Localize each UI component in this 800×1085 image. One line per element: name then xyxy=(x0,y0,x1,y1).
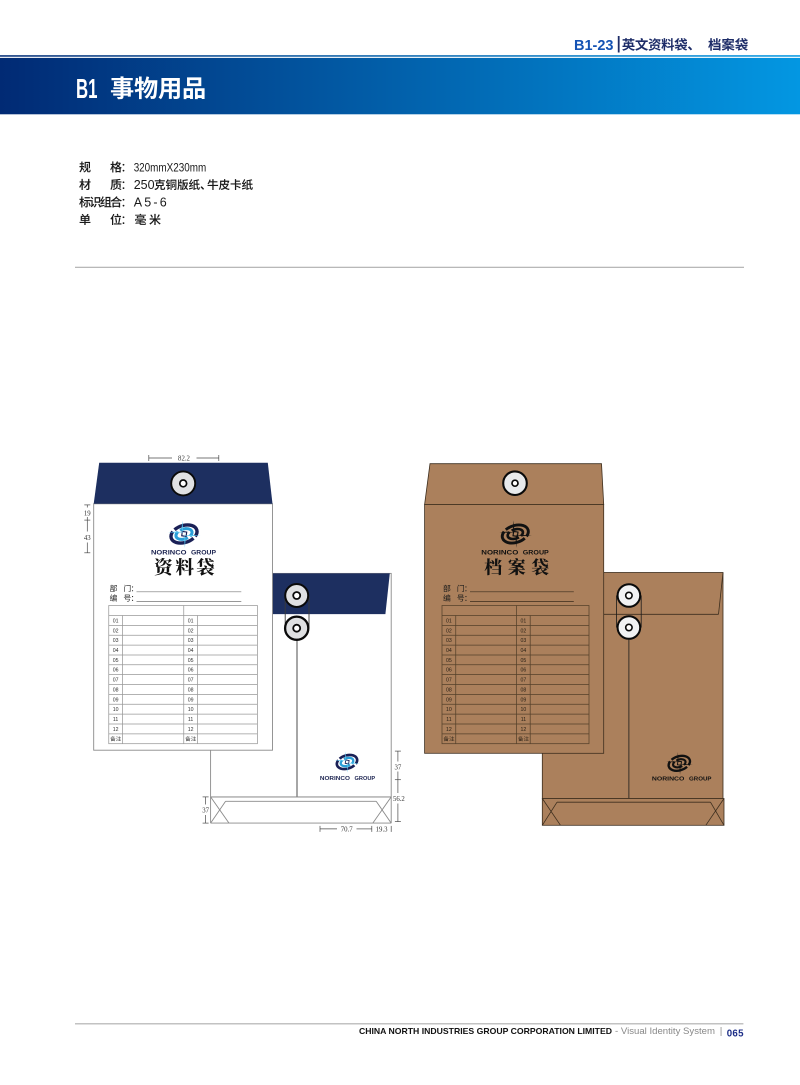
svg-text:NORINCO: NORINCO xyxy=(481,550,518,557)
svg-text:GROUP: GROUP xyxy=(523,550,550,557)
svg-text:07: 07 xyxy=(446,678,452,684)
svg-text:70.7: 70.7 xyxy=(341,827,353,834)
svg-text:11: 11 xyxy=(113,717,118,723)
svg-text:06: 06 xyxy=(188,668,194,674)
svg-text:01: 01 xyxy=(521,618,527,624)
svg-text:05: 05 xyxy=(113,658,119,664)
svg-text:06: 06 xyxy=(446,668,452,674)
svg-text:09: 09 xyxy=(113,697,119,703)
svg-text:08: 08 xyxy=(521,687,527,693)
svg-text:11: 11 xyxy=(446,717,451,723)
svg-text:NORINCO: NORINCO xyxy=(151,550,187,557)
svg-text:09: 09 xyxy=(521,697,527,703)
svg-text:11: 11 xyxy=(521,717,526,723)
svg-text:NORINCO: NORINCO xyxy=(652,776,685,782)
svg-text:82.2: 82.2 xyxy=(178,456,190,463)
svg-text:02: 02 xyxy=(521,628,527,634)
svg-text:08: 08 xyxy=(188,687,194,693)
svg-text:065: 065 xyxy=(727,1029,744,1040)
svg-text:07: 07 xyxy=(113,678,119,684)
svg-text:56.2: 56.2 xyxy=(393,796,405,803)
svg-text:10: 10 xyxy=(113,707,119,713)
svg-text:12: 12 xyxy=(446,727,452,733)
svg-text:08: 08 xyxy=(446,687,452,693)
svg-text:B1: B1 xyxy=(76,73,98,104)
svg-text:03: 03 xyxy=(446,638,452,644)
svg-text:03: 03 xyxy=(188,638,194,644)
svg-text:A5-6: A5-6 xyxy=(134,196,167,210)
svg-text:07: 07 xyxy=(188,678,194,684)
svg-text:01: 01 xyxy=(188,618,194,624)
svg-text:10: 10 xyxy=(521,707,527,713)
svg-text:07: 07 xyxy=(521,678,527,684)
svg-text:19.3: 19.3 xyxy=(376,827,388,834)
svg-text:12: 12 xyxy=(113,727,119,733)
svg-text:04: 04 xyxy=(113,648,119,654)
svg-text:GROUP: GROUP xyxy=(191,550,217,557)
svg-text:09: 09 xyxy=(188,697,194,703)
svg-text:09: 09 xyxy=(446,697,452,703)
svg-text:04: 04 xyxy=(446,648,452,654)
svg-text:05: 05 xyxy=(521,658,527,664)
svg-text:03: 03 xyxy=(521,638,527,644)
svg-text:CHINA NORTH INDUSTRIES GROUP C: CHINA NORTH INDUSTRIES GROUP CORPORATION… xyxy=(359,1026,612,1036)
svg-text:04: 04 xyxy=(188,648,194,654)
svg-text:01: 01 xyxy=(446,618,452,624)
svg-text:02: 02 xyxy=(113,628,119,634)
svg-text:B1-23: B1-23 xyxy=(574,38,614,54)
svg-text:12: 12 xyxy=(521,727,527,733)
svg-text:06: 06 xyxy=(113,668,119,674)
svg-text:10: 10 xyxy=(188,707,194,713)
svg-text:08: 08 xyxy=(113,687,119,693)
svg-text:03: 03 xyxy=(113,638,119,644)
svg-text:320mmX230mm: 320mmX230mm xyxy=(134,161,207,175)
svg-text:02: 02 xyxy=(188,628,194,634)
svg-text:- Visual Identity System: - Visual Identity System xyxy=(615,1026,715,1036)
svg-text:GROUP: GROUP xyxy=(355,776,376,782)
svg-text:12: 12 xyxy=(188,727,194,733)
svg-text:06: 06 xyxy=(521,668,527,674)
svg-text:10: 10 xyxy=(446,707,452,713)
svg-text:37: 37 xyxy=(202,808,209,815)
svg-text:11: 11 xyxy=(188,717,193,723)
svg-text:250: 250 xyxy=(134,178,155,192)
svg-text:05: 05 xyxy=(446,658,452,664)
svg-text:05: 05 xyxy=(188,658,194,664)
svg-text:19: 19 xyxy=(84,511,91,518)
svg-text:NORINCO: NORINCO xyxy=(320,776,351,782)
svg-text:37: 37 xyxy=(395,764,402,771)
svg-text:01: 01 xyxy=(113,618,119,624)
svg-text:GROUP: GROUP xyxy=(689,776,712,782)
svg-text:43: 43 xyxy=(84,535,91,542)
svg-text:02: 02 xyxy=(446,628,452,634)
svg-text:04: 04 xyxy=(521,648,527,654)
